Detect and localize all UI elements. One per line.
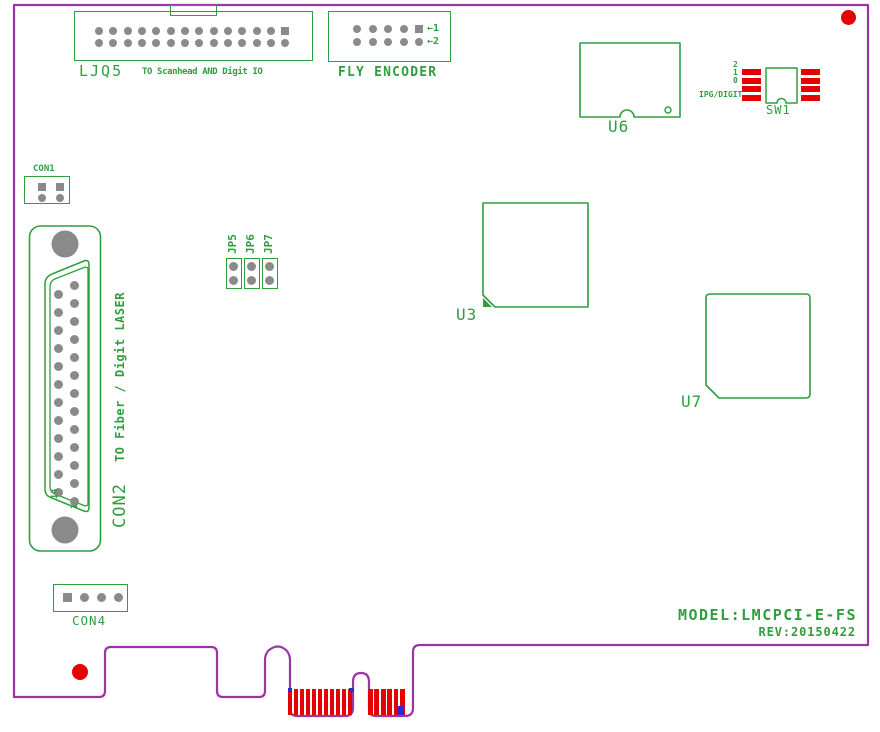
round-pin (70, 389, 79, 398)
ljq5-label: LJQ5 (79, 64, 123, 79)
con1-pin-row-top (38, 183, 64, 191)
con2-dsub-outer-outline (45, 261, 89, 512)
round-pin (324, 689, 328, 715)
round-pin (167, 39, 175, 47)
jumper-jp6-pins (247, 262, 256, 285)
round-pin (54, 362, 63, 371)
sw1-outline (766, 68, 797, 103)
edge-blue-mark-1 (288, 688, 292, 692)
round-pin (70, 335, 79, 344)
round-pin (210, 27, 218, 35)
round-pin (387, 689, 392, 715)
con2-pin14-label: 14 (51, 489, 60, 499)
round-pin (801, 78, 820, 84)
round-pin (195, 27, 203, 35)
round-pin (369, 25, 377, 33)
round-pin (294, 689, 298, 715)
jumper-jp5-pins (229, 262, 238, 285)
round-pin (306, 689, 310, 715)
round-pin (247, 276, 256, 285)
round-pin (54, 434, 63, 443)
ljq5-connector-body (74, 11, 313, 61)
round-pin (229, 262, 238, 271)
round-pin (54, 344, 63, 353)
round-pin (267, 27, 275, 35)
round-pin (253, 39, 261, 47)
fly-encoder-pin1-arrow: ←1 (427, 24, 439, 34)
con4-label: CON4 (72, 615, 106, 628)
square-pin (38, 183, 46, 191)
ljq5-description: TO Scanhead AND Digit IO (142, 68, 262, 77)
round-pin (224, 39, 232, 47)
square-pin (63, 593, 72, 602)
round-pin (109, 39, 117, 47)
round-pin (300, 689, 304, 715)
round-pin (224, 27, 232, 35)
round-pin (54, 470, 63, 479)
round-pin (742, 95, 761, 101)
round-pin (384, 25, 392, 33)
round-pin (353, 25, 361, 33)
fly-encoder-pin2-arrow: ←2 (427, 37, 439, 47)
con2-mounting-hole-top (52, 231, 79, 258)
round-pin (318, 689, 322, 715)
round-pin (70, 371, 79, 380)
round-pin (253, 27, 261, 35)
round-pin (353, 38, 361, 46)
round-pin (415, 38, 423, 46)
round-pin (54, 326, 63, 335)
round-pin (38, 194, 46, 202)
round-pin (70, 281, 79, 290)
u3-label: U3 (456, 307, 477, 323)
ljq5-polarization-tab (170, 5, 217, 16)
round-pin (742, 86, 761, 92)
u7-label: U7 (681, 394, 702, 410)
round-pin (114, 593, 123, 602)
round-pin (70, 443, 79, 452)
round-pin (152, 39, 160, 47)
round-pin (265, 262, 274, 271)
sw1-position-digits: 2 1 0 (733, 61, 738, 85)
ljq5-pin-row-top (95, 27, 289, 35)
edge-blue-mark-2 (349, 688, 354, 692)
round-pin (374, 689, 379, 715)
con2-description: TO Fiber / Digit LASER (114, 292, 126, 462)
round-pin (54, 308, 63, 317)
round-pin (95, 27, 103, 35)
round-pin (54, 452, 63, 461)
round-pin (70, 353, 79, 362)
edge-blue-mark-3 (397, 706, 404, 715)
revision-label: REV:20150422 (759, 626, 857, 638)
round-pin (742, 78, 761, 84)
round-pin (167, 27, 175, 35)
square-pin (415, 25, 423, 33)
round-pin (342, 689, 346, 715)
round-pin (742, 69, 761, 75)
jumper-jp7-pins (265, 262, 274, 285)
u6-label: U6 (608, 119, 629, 135)
round-pin (381, 689, 386, 715)
edge-fingers-left-group (288, 689, 352, 715)
round-pin (210, 39, 218, 47)
round-pin (330, 689, 334, 715)
con2-pin1-label: 1 (71, 504, 80, 509)
round-pin (195, 39, 203, 47)
round-pin (368, 689, 373, 715)
round-pin (801, 95, 820, 101)
round-pin (54, 416, 63, 425)
round-pin (369, 38, 377, 46)
fiducial-dot-bottom-left (72, 664, 88, 680)
round-pin (70, 425, 79, 434)
round-pin (400, 25, 408, 33)
jumper-jp7-label: JP7 (263, 234, 274, 254)
con2-label: CON2 (112, 483, 129, 528)
con2-pin-column-left (54, 290, 63, 497)
sw1-mode-label: IPG/DIGIT (699, 91, 742, 99)
fly-encoder-pin-row-bottom (353, 38, 423, 46)
fiducial-dot-top-right (841, 10, 856, 25)
jumper-jp6-label: JP6 (245, 234, 256, 254)
fly-encoder-label: FLY ENCODER (338, 66, 437, 79)
square-pin (281, 27, 289, 35)
u6-pin1-dot (665, 107, 671, 113)
round-pin (138, 27, 146, 35)
fly-encoder-pin-row-top (353, 25, 423, 33)
sw1-position-0: 0 (733, 77, 738, 85)
jumper-jp5-label: JP5 (227, 234, 238, 254)
round-pin (247, 262, 256, 271)
u6-outline (580, 43, 680, 117)
round-pin (400, 38, 408, 46)
u7-outline (706, 294, 810, 398)
round-pin (181, 39, 189, 47)
round-pin (54, 290, 63, 299)
round-pin (70, 299, 79, 308)
round-pin (267, 39, 275, 47)
round-pin (70, 479, 79, 488)
round-pin (54, 380, 63, 389)
con1-pin-row-bottom (38, 194, 64, 202)
round-pin (265, 276, 274, 285)
round-pin (181, 27, 189, 35)
round-pin (229, 276, 238, 285)
round-pin (109, 27, 117, 35)
round-pin (348, 689, 352, 715)
round-pin (124, 27, 132, 35)
round-pin (312, 689, 316, 715)
con2-pin-column-right (70, 281, 79, 506)
round-pin (54, 398, 63, 407)
round-pin (80, 593, 89, 602)
round-pin (138, 39, 146, 47)
round-pin (801, 69, 820, 75)
sw1-label: SW1 (766, 104, 791, 116)
round-pin (70, 407, 79, 416)
round-pin (281, 39, 289, 47)
round-pin (152, 27, 160, 35)
round-pin (124, 39, 132, 47)
round-pin (95, 39, 103, 47)
round-pin (70, 317, 79, 326)
sw1-pads-right (801, 69, 820, 101)
con4-pin-row (63, 593, 123, 602)
round-pin (288, 689, 292, 715)
round-pin (336, 689, 340, 715)
con1-label: CON1 (33, 165, 55, 174)
round-pin (238, 27, 246, 35)
round-pin (70, 461, 79, 470)
pcb-layout-diagram: LJQ5 TO Scanhead AND Digit IO ←1 ←2 FLY … (0, 0, 880, 732)
con2-mounting-hole-bottom (52, 517, 79, 544)
round-pin (801, 86, 820, 92)
sw1-pads-left (742, 69, 761, 101)
u3-outline (483, 203, 588, 307)
round-pin (384, 38, 392, 46)
round-pin (238, 39, 246, 47)
round-pin (97, 593, 106, 602)
model-label: MODEL:LMCPCI-E-FS (678, 608, 857, 623)
ljq5-pin-row-bottom (95, 39, 289, 47)
round-pin (56, 194, 64, 202)
square-pin (56, 183, 64, 191)
